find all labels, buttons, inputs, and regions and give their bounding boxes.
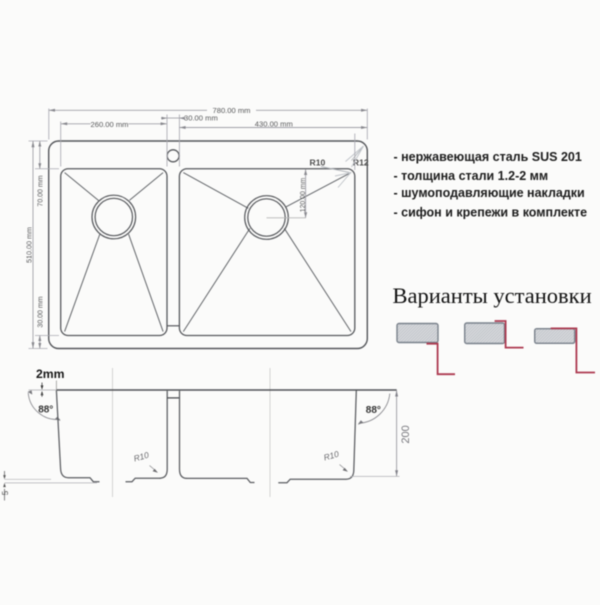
- svg-text:30.00 mm: 30.00 mm: [184, 114, 218, 123]
- svg-text:R10: R10: [310, 158, 326, 168]
- svg-text:780.00 mm: 780.00 mm: [213, 106, 251, 115]
- svg-text:R12: R12: [353, 158, 369, 168]
- svg-text:260.00 mm: 260.00 mm: [91, 120, 129, 129]
- svg-text:- сифон и крепежи в комплекте: - сифон и крепежи в комплекте: [394, 205, 588, 219]
- svg-text:510.00 mm: 510.00 mm: [25, 227, 34, 263]
- svg-text:200: 200: [400, 425, 412, 443]
- svg-text:70.00 mm: 70.00 mm: [37, 175, 44, 206]
- svg-text:430.00 mm: 430.00 mm: [255, 120, 293, 129]
- svg-text:88°: 88°: [366, 405, 381, 416]
- svg-text:88°: 88°: [38, 405, 53, 416]
- svg-text:- шумоподавляющие накладки: - шумоподавляющие накладки: [394, 186, 585, 200]
- svg-text:5: 5: [1, 490, 10, 495]
- svg-text:Варианты установки: Варианты установки: [393, 283, 592, 308]
- svg-text:- толщина стали 1.2-2 мм: - толщина стали 1.2-2 мм: [394, 169, 549, 183]
- svg-text:- нержавеющая сталь SUS 201: - нержавеющая сталь SUS 201: [394, 150, 582, 164]
- svg-text:120.00 mm: 120.00 mm: [300, 178, 307, 213]
- svg-text:2mm: 2mm: [36, 367, 65, 381]
- svg-text:30.00 mm: 30.00 mm: [37, 296, 44, 327]
